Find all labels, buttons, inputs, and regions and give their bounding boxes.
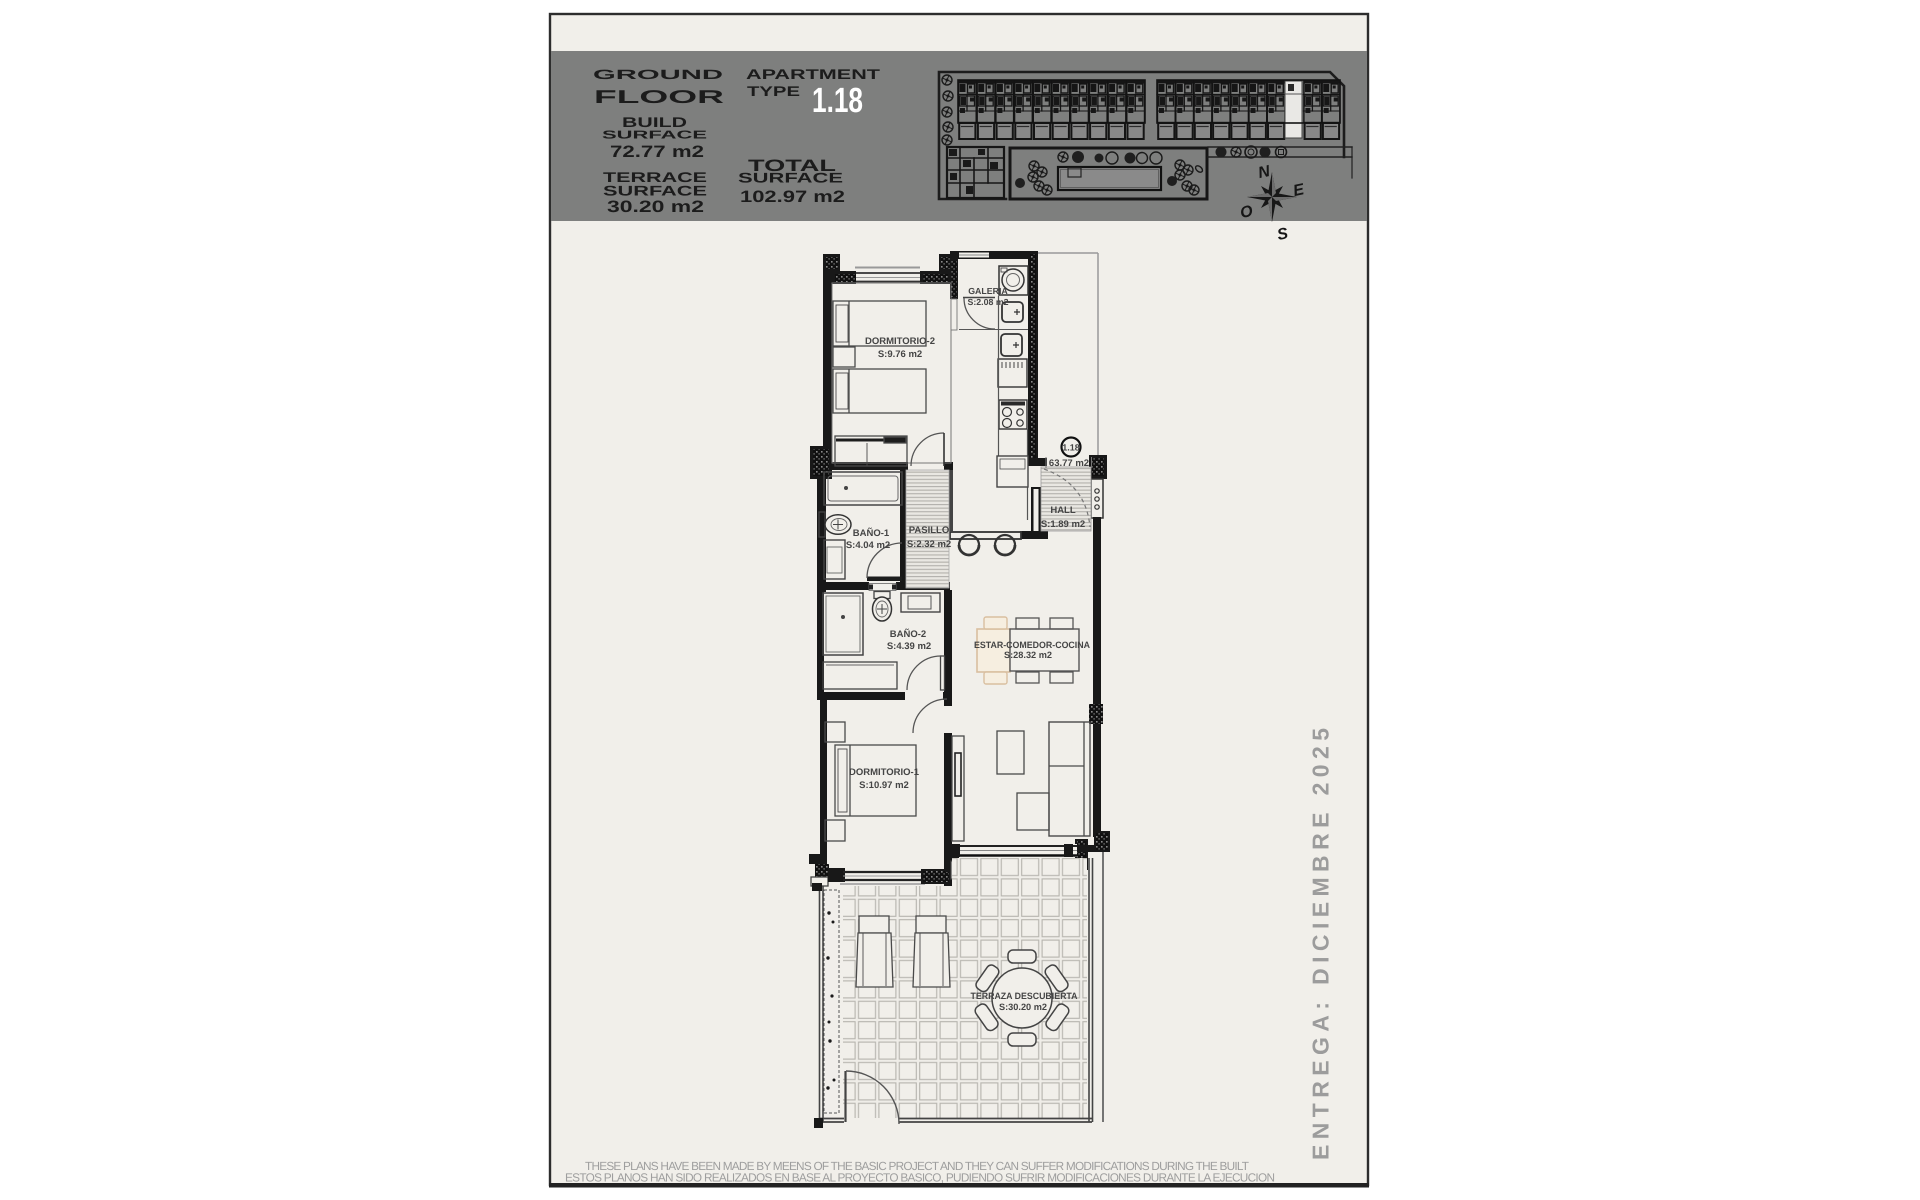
svg-text:BAÑO-2: BAÑO-2 [890,628,926,640]
svg-text:30.20 m2: 30.20 m2 [607,198,704,216]
svg-text:BAÑO-1: BAÑO-1 [853,527,890,539]
svg-text:GROUND: GROUND [593,67,724,82]
svg-text:APARTMENT: APARTMENT [746,66,881,82]
svg-text:63.77 m2: 63.77 m2 [1049,458,1089,469]
svg-text:ENTREGA: DICIEMBRE 2025: ENTREGA: DICIEMBRE 2025 [1308,728,1334,1160]
svg-text:GALERIA: GALERIA [968,286,1008,296]
svg-text:S:28.32 m2: S:28.32 m2 [1004,650,1052,660]
svg-text:DORMITORIO-2: DORMITORIO-2 [865,336,935,347]
svg-text:S:4.39 m2: S:4.39 m2 [887,641,931,652]
svg-text:1.18: 1.18 [1062,443,1080,453]
svg-text:S:9.76 m2: S:9.76 m2 [878,349,922,360]
svg-text:S:2.32 m2: S:2.32 m2 [907,539,951,550]
svg-text:S:2.08 m2: S:2.08 m2 [967,297,1008,307]
svg-text:ESTOS PLANOS HAN SIDO REALIZAD: ESTOS PLANOS HAN SIDO REALIZADOS EN BASE… [565,1171,1275,1185]
svg-text:1.18: 1.18 [812,81,863,120]
svg-text:102.97 m2: 102.97 m2 [740,188,845,206]
svg-text:BUILD: BUILD [622,114,687,130]
svg-text:SURFACE: SURFACE [602,130,708,142]
svg-text:DORMITORIO-1: DORMITORIO-1 [849,767,920,778]
svg-text:S:4.04 m2: S:4.04 m2 [846,540,890,551]
svg-text:ESTAR-COMEDOR-COCINA: ESTAR-COMEDOR-COCINA [974,640,1090,650]
svg-text:TYPE: TYPE [747,83,800,99]
svg-text:S:30.20 m2: S:30.20 m2 [999,1002,1047,1012]
svg-text:SURFACE: SURFACE [738,170,843,186]
svg-text:72.77 m2: 72.77 m2 [610,143,704,161]
svg-text:S:10.97 m2: S:10.97 m2 [859,780,909,791]
svg-text:S:1.89 m2: S:1.89 m2 [1041,519,1085,530]
svg-text:SURFACE: SURFACE [603,183,707,199]
svg-text:PASILLO: PASILLO [909,525,949,536]
svg-text:FLOOR: FLOOR [594,86,724,107]
svg-text:HALL: HALL [1050,505,1076,516]
svg-text:TERRAZA DESCUBIERTA: TERRAZA DESCUBIERTA [971,991,1078,1001]
